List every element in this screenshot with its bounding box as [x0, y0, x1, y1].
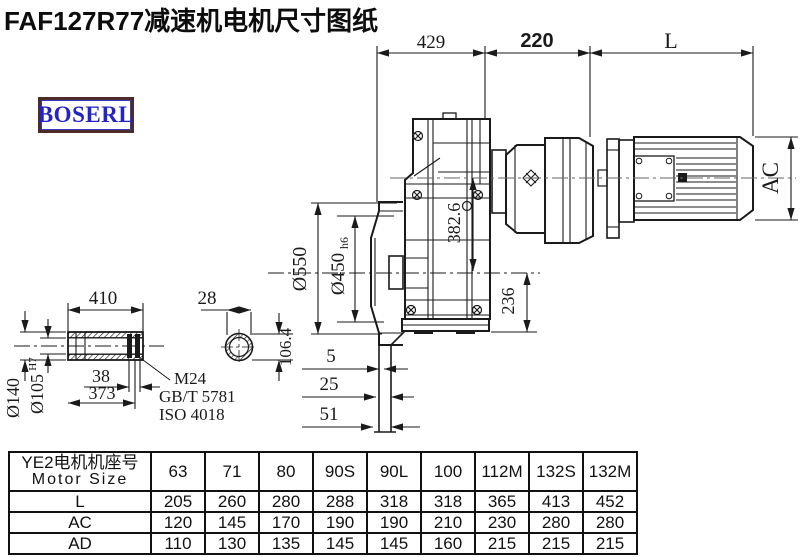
- table-header-cn: YE2电机机座号: [10, 454, 150, 472]
- table-cell: 318: [367, 491, 421, 512]
- table-cell: 230: [475, 512, 529, 533]
- motor-bolt-icon: [636, 158, 672, 199]
- table-cell: 260: [205, 491, 259, 512]
- dim-450: Ø450: [328, 253, 349, 295]
- dim-410: 410: [89, 288, 118, 309]
- dim-220: 220: [520, 30, 553, 52]
- row-label: AD: [9, 533, 151, 554]
- table-header-en: Motor Size: [10, 472, 150, 489]
- dim-28: 28: [198, 288, 217, 309]
- dim-51: 51: [320, 404, 339, 425]
- table-cell: 160: [421, 533, 475, 554]
- table-cell: 215: [583, 533, 637, 554]
- dimension-labels: 429 220 L Ø550 Ø450 h6 382.6 236 5 25 51…: [289, 28, 783, 425]
- table-row-L: L 205 260 280 288 318 318 365 413 452: [9, 491, 637, 512]
- table-cell: 365: [475, 491, 529, 512]
- note-thread: M24: [174, 369, 207, 388]
- table-cell: 190: [367, 512, 421, 533]
- table-size-header: 90S: [313, 452, 367, 491]
- table-size-header: 132M: [583, 452, 637, 491]
- table-size-header: 71: [205, 452, 259, 491]
- table-cell: 145: [313, 533, 367, 554]
- shaft-dim-lines: [20, 303, 293, 409]
- table-cell: 110: [151, 533, 205, 554]
- note-standard2: ISO 4018: [159, 405, 225, 424]
- table-cell: 210: [421, 512, 475, 533]
- table-size-header: 63: [151, 452, 205, 491]
- table-size-header: 132S: [529, 452, 583, 491]
- table-cell: 288: [313, 491, 367, 512]
- shaft-dim-labels: 410 Ø140 Ø105 H7 38 373 28 106.4 M24 GB/…: [3, 288, 295, 424]
- table-cell: 215: [475, 533, 529, 554]
- table-cell: 145: [367, 533, 421, 554]
- dimension-arrows: [314, 49, 794, 430]
- page: { "title": "FAF127R77减速机电机尺寸图纸", "logo":…: [0, 0, 800, 557]
- table-cell: 215: [529, 533, 583, 554]
- table-cell: 135: [259, 533, 313, 554]
- table-cell: 170: [259, 512, 313, 533]
- dimension-drawing: 429 220 L Ø550 Ø450 h6 382.6 236 5 25 51…: [0, 0, 800, 450]
- table-cell: 120: [151, 512, 205, 533]
- row-label: L: [9, 491, 151, 512]
- dim-106: 106.4: [276, 327, 295, 366]
- dim-105-tol: H7: [27, 357, 39, 371]
- stator-block: [634, 156, 674, 201]
- dimension-lines: [302, 46, 798, 427]
- dim-382: 382.6: [444, 203, 464, 244]
- dim-140: Ø140: [3, 378, 23, 418]
- table-cell: 280: [259, 491, 313, 512]
- table-cell: 130: [205, 533, 259, 554]
- note-standard1: GB/T 5781: [159, 387, 236, 406]
- dim-AC: AC: [758, 162, 783, 194]
- table-cell: 280: [529, 512, 583, 533]
- table-header-row: YE2电机机座号 Motor Size 63 71 80 90S 90L 100…: [9, 452, 637, 491]
- dim-550: Ø550: [289, 247, 311, 291]
- table-cell: 452: [583, 491, 637, 512]
- table-header-motorsize: YE2电机机座号 Motor Size: [9, 452, 151, 491]
- motor-assembly: [492, 137, 753, 243]
- dim-L: L: [664, 28, 677, 53]
- table-row-AC: AC 120 145 170 190 190 210 230 280 280: [9, 512, 637, 533]
- table-cell: 413: [529, 491, 583, 512]
- dim-105: Ø105: [27, 374, 47, 414]
- dim-429: 429: [417, 32, 446, 53]
- dim-25: 25: [320, 374, 339, 395]
- table-size-header: 100: [421, 452, 475, 491]
- table-size-header: 90L: [367, 452, 421, 491]
- table-cell: 145: [205, 512, 259, 533]
- dim-236: 236: [498, 288, 518, 315]
- motor-size-table: YE2电机机座号 Motor Size 63 71 80 90S 90L 100…: [8, 451, 638, 555]
- section-circle: [221, 329, 257, 365]
- dim-450-tol: h6: [337, 237, 351, 249]
- table-cell: 190: [313, 512, 367, 533]
- dim-373: 373: [89, 383, 116, 403]
- hollow-shaft-detail: [14, 303, 293, 409]
- dim-5: 5: [326, 346, 336, 367]
- table-row-AD: AD 110 130 135 145 145 160 215 215 215: [9, 533, 637, 554]
- table-cell: 318: [421, 491, 475, 512]
- table-cell: 205: [151, 491, 205, 512]
- table-cell: 280: [583, 512, 637, 533]
- row-label: AC: [9, 512, 151, 533]
- table-size-header: 112M: [475, 452, 529, 491]
- table-size-header: 80: [259, 452, 313, 491]
